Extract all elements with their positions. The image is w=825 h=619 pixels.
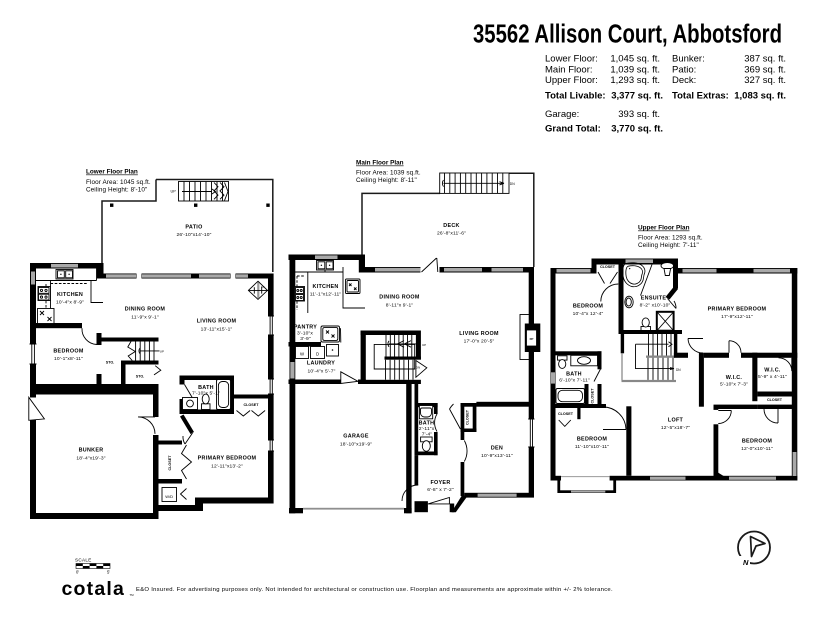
svg-text:ENSUITE: ENSUITE	[641, 296, 667, 302]
svg-text:35562 Allison Court, Abbotsfor: 35562 Allison Court, Abbotsford	[473, 21, 782, 49]
svg-text:10'-4"x 5'-7": 10'-4"x 5'-7"	[308, 369, 336, 375]
svg-text:DINING ROOM: DINING ROOM	[379, 295, 420, 301]
svg-text:SCALE: SCALE	[75, 558, 92, 563]
svg-text:8'-2" x10'-10": 8'-2" x10'-10"	[640, 303, 671, 309]
svg-text:Grand Total:: Grand Total:	[545, 124, 601, 135]
svg-text:DINING ROOM: DINING ROOM	[125, 307, 166, 313]
svg-text:2'-11"x: 2'-11"x	[419, 426, 435, 432]
svg-text:18'-4"x19'-3": 18'-4"x19'-3"	[76, 456, 105, 462]
svg-text:1,045 sq. ft.: 1,045 sq. ft.	[610, 54, 660, 65]
svg-text:UP: UP	[160, 349, 164, 353]
svg-text:LOFT: LOFT	[668, 418, 684, 424]
svg-text:PRIMARY BEDROOM: PRIMARY BEDROOM	[708, 307, 767, 313]
svg-text:17'-0"x 20'-5": 17'-0"x 20'-5"	[464, 339, 495, 345]
svg-text:Bunker:: Bunker:	[672, 54, 705, 65]
svg-text:FP: FP	[530, 337, 534, 341]
svg-text:5': 5'	[107, 570, 110, 575]
svg-text:10'-9"x13'-11": 10'-9"x13'-11"	[481, 453, 513, 459]
svg-text:CLOSET: CLOSET	[767, 398, 783, 402]
svg-text:LIVING ROOM: LIVING ROOM	[459, 331, 499, 337]
svg-text:BEDROOM: BEDROOM	[742, 439, 772, 445]
svg-text:1,039 sq. ft.: 1,039 sq. ft.	[610, 64, 660, 75]
svg-text:DN: DN	[510, 182, 515, 186]
svg-text:DN: DN	[676, 368, 681, 372]
svg-text:W.I.C.: W.I.C.	[726, 375, 743, 381]
svg-text:12'-0"x10'-11": 12'-0"x10'-11"	[741, 446, 773, 452]
svg-text:PANTRY: PANTRY	[294, 325, 317, 331]
svg-text:369 sq. ft.: 369 sq. ft.	[744, 64, 786, 75]
svg-text:10'-1"x8'-11": 10'-1"x8'-11"	[54, 356, 83, 362]
svg-text:5'-9" x 4'-11": 5'-9" x 4'-11"	[758, 374, 787, 380]
svg-text:Patio:: Patio:	[672, 64, 696, 75]
svg-text:DN: DN	[416, 366, 420, 370]
svg-text:5'-10"x 7'-3": 5'-10"x 7'-3"	[720, 382, 748, 388]
svg-text:W/D: W/D	[165, 494, 173, 499]
svg-text:W.I.C.: W.I.C.	[764, 368, 781, 374]
svg-text:12'-5"x18'-7": 12'-5"x18'-7"	[661, 425, 690, 431]
svg-text:CLOSET: CLOSET	[466, 409, 470, 425]
svg-text:BEDROOM: BEDROOM	[577, 437, 607, 443]
svg-text:6'-10"x 7'-11": 6'-10"x 7'-11"	[559, 378, 590, 384]
svg-text:DECK: DECK	[443, 223, 459, 229]
svg-text:17'-9"x12'-11": 17'-9"x12'-11"	[721, 314, 753, 320]
svg-text:E&O Insured. For advertising p: E&O Insured. For advertising purposes on…	[136, 587, 613, 593]
svg-text:Ceiling Height: 8'-11": Ceiling Height: 8'-11"	[356, 177, 417, 184]
svg-text:11'-10"x10'-11": 11'-10"x10'-11"	[575, 444, 609, 450]
svg-text:CLOSET: CLOSET	[591, 388, 595, 404]
svg-text:CLOSET: CLOSET	[244, 403, 260, 407]
svg-text:7'-4": 7'-4"	[422, 431, 433, 437]
svg-text:Total Extras:: Total Extras:	[672, 90, 729, 101]
svg-text:3'-9": 3'-9"	[300, 336, 311, 342]
svg-text:Deck:: Deck:	[672, 75, 696, 86]
svg-text:12'-11"x13'-2": 12'-11"x13'-2"	[211, 464, 243, 470]
svg-text:327 sq. ft.: 327 sq. ft.	[744, 75, 786, 86]
svg-text:BATH: BATH	[198, 385, 214, 391]
svg-text:10'-4"x 12'-4": 10'-4"x 12'-4"	[573, 311, 604, 317]
svg-text:D: D	[316, 352, 319, 357]
svg-text:387 sq. ft.: 387 sq. ft.	[744, 54, 786, 65]
svg-text:3,377 sq. ft.: 3,377 sq. ft.	[611, 90, 663, 101]
svg-text:UP: UP	[422, 343, 426, 347]
svg-text:6'-8" x 7'-2": 6'-8" x 7'-2"	[427, 487, 454, 493]
svg-text:26'-8"x11'-6": 26'-8"x11'-6"	[437, 231, 466, 237]
svg-text:18'-10"x19'-9": 18'-10"x19'-9"	[340, 442, 372, 448]
svg-text:LIVING ROOM: LIVING ROOM	[197, 319, 237, 325]
svg-text:CLOSET: CLOSET	[600, 265, 616, 269]
svg-text:KITCHEN: KITCHEN	[312, 284, 338, 290]
svg-text:3'-10"x: 3'-10"x	[297, 331, 313, 337]
svg-text:CLOSET: CLOSET	[168, 455, 172, 471]
svg-text:8'-11"x 9'-1": 8'-11"x 9'-1"	[386, 303, 414, 309]
svg-text:Main Floor:: Main Floor:	[545, 64, 593, 75]
svg-text:13'-11"x15'-1": 13'-11"x15'-1"	[201, 327, 233, 333]
svg-text:10'-4"x 8'-9": 10'-4"x 8'-9"	[56, 300, 84, 306]
svg-text:DEN: DEN	[491, 446, 503, 452]
svg-text:STO.: STO.	[136, 375, 145, 379]
svg-text:3,770 sq. ft.: 3,770 sq. ft.	[611, 124, 663, 135]
svg-text:11'-9"x 9'-1": 11'-9"x 9'-1"	[131, 315, 159, 321]
svg-text:Lower Floor Plan: Lower Floor Plan	[86, 169, 138, 176]
svg-text:GARAGE: GARAGE	[343, 434, 369, 440]
svg-text:11'-1"x12'-11": 11'-1"x12'-11"	[310, 292, 342, 298]
svg-text:FOYER: FOYER	[430, 480, 450, 486]
svg-text:Total Livable:: Total Livable:	[545, 90, 606, 101]
svg-text:PATIO: PATIO	[185, 225, 202, 231]
svg-text:Ceiling Height: 7'-11": Ceiling Height: 7'-11"	[638, 242, 699, 249]
svg-text:PRIMARY BEDROOM: PRIMARY BEDROOM	[198, 456, 257, 462]
svg-text:STO.: STO.	[106, 360, 115, 364]
svg-text:KITCHEN: KITCHEN	[57, 292, 83, 298]
svg-text:0': 0'	[76, 570, 79, 575]
svg-text:TM: TM	[130, 593, 135, 597]
svg-text:1,083 sq. ft.: 1,083 sq. ft.	[734, 90, 786, 101]
svg-text:Upper Floor:: Upper Floor:	[545, 75, 598, 86]
svg-text:BEDROOM: BEDROOM	[573, 304, 603, 310]
svg-text:FP: FP	[261, 285, 265, 289]
svg-text:CLOSET: CLOSET	[558, 412, 574, 416]
svg-text:cotala: cotala	[62, 578, 126, 600]
svg-text:1,293 sq. ft.: 1,293 sq. ft.	[610, 75, 660, 86]
svg-text:BATH: BATH	[566, 372, 582, 378]
svg-text:Upper Floor Plan: Upper Floor Plan	[638, 225, 690, 232]
svg-text:BATH: BATH	[419, 421, 435, 427]
svg-text:N: N	[743, 558, 749, 567]
svg-text:26'-10"x14'-10": 26'-10"x14'-10"	[176, 232, 211, 238]
svg-text:LAUNDRY: LAUNDRY	[307, 361, 335, 367]
svg-text:Ceiling Height: 8'-10": Ceiling Height: 8'-10"	[86, 187, 147, 194]
svg-text:BUNKER: BUNKER	[79, 448, 104, 454]
svg-text:UP: UP	[171, 190, 177, 194]
svg-text:393 sq. ft.: 393 sq. ft.	[618, 109, 660, 120]
svg-text:Main Floor Plan: Main Floor Plan	[356, 160, 404, 167]
svg-text:Floor Area: 1039 sq.ft.: Floor Area: 1039 sq.ft.	[356, 170, 421, 177]
svg-text:Floor Area: 1045 sq.ft.: Floor Area: 1045 sq.ft.	[86, 179, 151, 186]
svg-text:7'-10"x 5'-1": 7'-10"x 5'-1"	[192, 391, 220, 397]
svg-text:Garage:: Garage:	[545, 109, 579, 120]
svg-text:Lower Floor:: Lower Floor:	[545, 54, 598, 65]
svg-text:Floor Area: 1293 sq.ft.: Floor Area: 1293 sq.ft.	[638, 235, 703, 242]
svg-text:BEDROOM: BEDROOM	[53, 349, 83, 355]
